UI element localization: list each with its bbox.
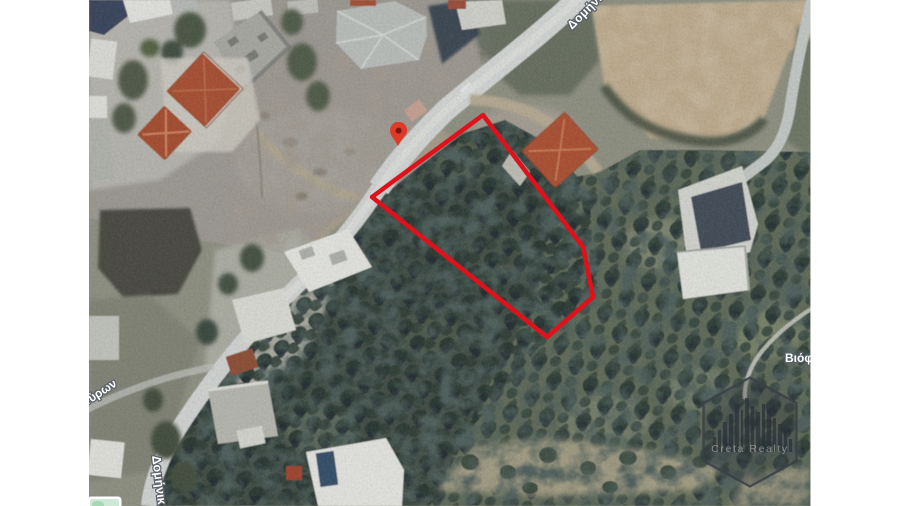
- svg-text:Creta Realty: Creta Realty: [711, 443, 789, 455]
